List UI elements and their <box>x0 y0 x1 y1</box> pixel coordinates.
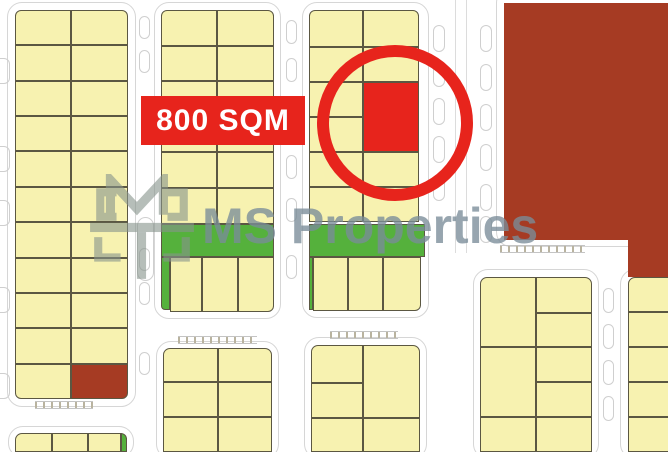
block-g-plot <box>628 417 668 452</box>
parking-bay <box>603 324 614 349</box>
block-a-plot <box>15 293 71 328</box>
parking-bay <box>480 64 492 91</box>
area-badge-label: 800 SQM <box>156 104 290 138</box>
block-d-plot <box>218 348 272 382</box>
block-a-plot <box>71 293 128 328</box>
block-e-plot <box>311 418 363 452</box>
crosswalk <box>178 336 257 344</box>
block-f-plot <box>480 417 536 452</box>
block-f-plot <box>480 277 536 347</box>
parking-bay <box>139 16 150 39</box>
block-a-plot <box>71 328 128 364</box>
block-a-plot <box>71 116 128 151</box>
block-b-plot <box>217 10 274 46</box>
block-b-plot <box>161 46 217 81</box>
parking-bay <box>0 200 10 226</box>
block-f-plot <box>536 347 592 382</box>
crosswalk <box>35 401 93 409</box>
block-f-plot <box>536 277 592 313</box>
parking-bay <box>603 396 614 421</box>
highlight-circle <box>317 45 473 201</box>
block-g-plot <box>628 312 668 347</box>
block-e-plot <box>363 418 420 452</box>
parking-bay <box>286 58 297 82</box>
parking-bay <box>0 146 10 172</box>
district-dark-red-ext <box>628 240 668 277</box>
block-d-plot <box>163 348 218 382</box>
parking-bay <box>0 287 10 313</box>
parking-bay <box>433 25 445 52</box>
block-f-plot <box>536 313 592 347</box>
block-h-plot <box>88 433 121 452</box>
map-canvas: MS Properties 800 SQM <box>0 0 668 452</box>
block-a-plot <box>15 116 71 151</box>
parking-bay <box>139 50 150 73</box>
block-g-plot <box>628 277 668 312</box>
parking-bay <box>286 155 297 179</box>
block-h-plot <box>52 433 88 452</box>
block-a-plot <box>15 10 71 45</box>
block-a-plot <box>15 328 71 364</box>
block-f-plot <box>536 417 592 452</box>
parking-bay <box>286 20 297 44</box>
block-c-plot <box>348 257 383 311</box>
block-a-plot <box>15 222 71 258</box>
block-b-plot <box>217 152 274 188</box>
block-f-plot <box>480 347 536 417</box>
block-a-plot <box>15 187 71 222</box>
block-e-plot <box>363 345 420 418</box>
parking-bay <box>139 352 150 375</box>
block-c-plot <box>313 257 348 311</box>
block-h-plot <box>121 433 127 452</box>
parking-bay <box>480 144 492 171</box>
block-b-plot <box>238 257 274 312</box>
parking-bay <box>0 373 10 399</box>
block-a-plot <box>71 81 128 116</box>
block-d-plot <box>218 417 272 452</box>
block-g-plot <box>628 347 668 382</box>
block-a-plot <box>15 45 71 81</box>
block-f-plot <box>536 382 592 417</box>
ms-monogram-icon <box>86 174 198 286</box>
parking-bay <box>603 360 614 385</box>
block-a-plot <box>15 151 71 187</box>
block-h-plot <box>15 433 52 452</box>
block-c-plot <box>363 10 419 47</box>
block-a-plot <box>15 258 71 293</box>
block-a-plot <box>71 45 128 81</box>
parking-bay <box>480 104 492 131</box>
block-d-plot <box>218 382 272 417</box>
area-badge: 800 SQM <box>141 96 305 145</box>
block-c-plot <box>309 10 363 47</box>
block-g-plot <box>628 382 668 417</box>
parking-bay <box>0 58 10 84</box>
block-a-plot <box>71 364 128 399</box>
block-b-plot <box>161 10 217 46</box>
block-b-plot <box>202 257 238 312</box>
block-c-plot <box>309 257 313 310</box>
block-b-plot <box>217 46 274 81</box>
crosswalk <box>330 331 398 339</box>
watermark-text: MS Properties <box>202 197 538 255</box>
block-a-plot <box>15 364 71 399</box>
block-a-plot <box>15 81 71 116</box>
parking-bay <box>286 255 297 279</box>
block-c-plot <box>383 257 421 311</box>
parking-bay <box>480 25 492 52</box>
parking-bay <box>603 288 614 313</box>
block-a-plot <box>71 10 128 45</box>
block-e-plot <box>311 383 363 418</box>
block-d-plot <box>163 417 218 452</box>
block-e-plot <box>311 345 363 383</box>
block-d-plot <box>163 382 218 417</box>
